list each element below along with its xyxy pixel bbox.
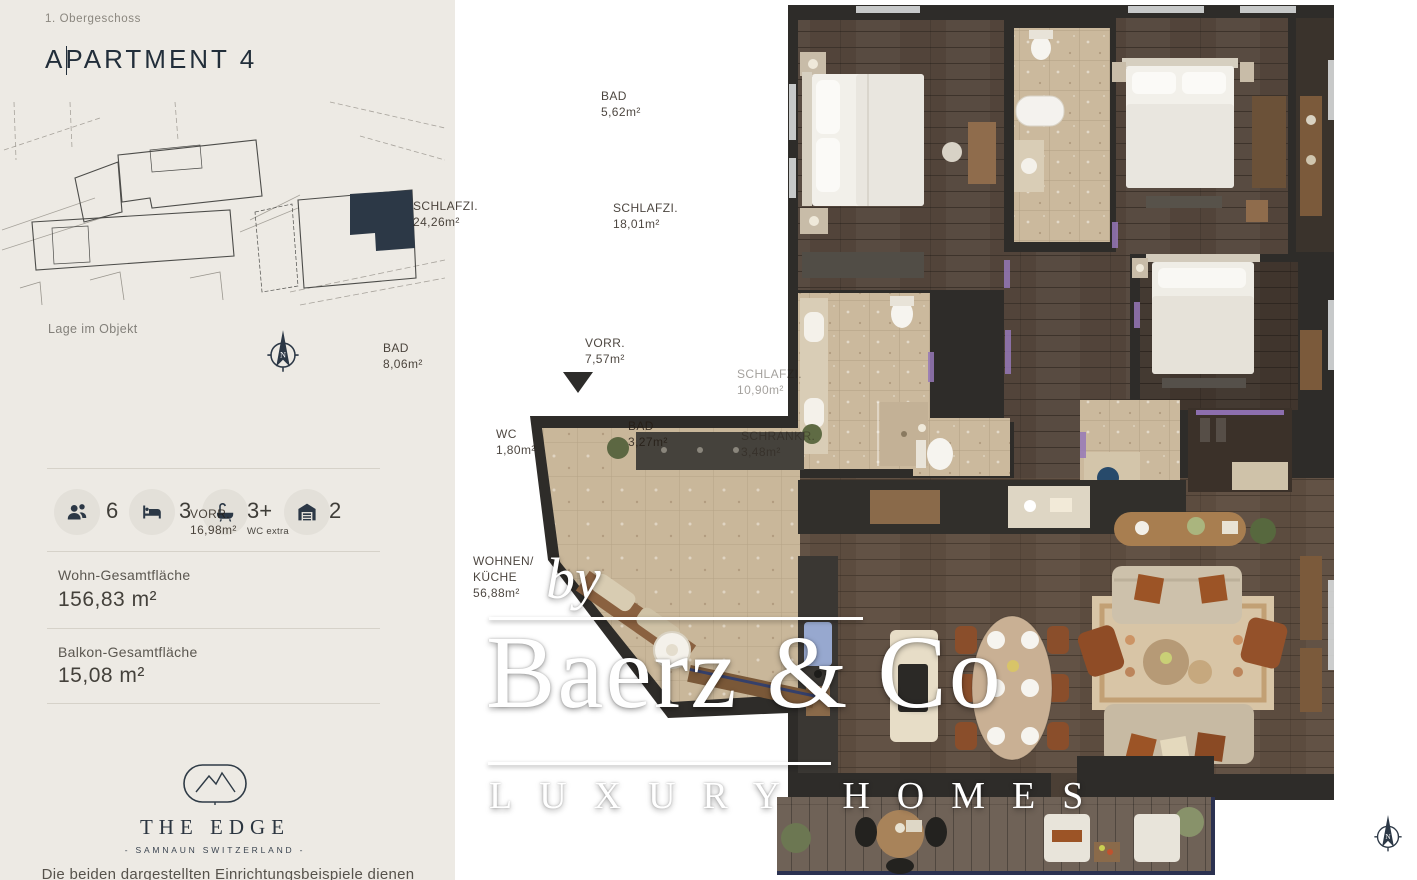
divider — [47, 468, 380, 469]
room-label-vorraum-1: VORR.7,57m² — [585, 335, 625, 367]
room-label-schlafzimmer-2: SCHLAFZI.18,01m² — [613, 200, 678, 232]
room-label-bad-2: BAD8,06m² — [383, 340, 423, 372]
stat-baths-value: 3+ — [247, 498, 272, 524]
mountain-logo-icon — [179, 762, 251, 806]
watermark-tagline: LUXURY HOMES — [489, 774, 1110, 818]
site-plan-caption: Lage im Objekt — [48, 322, 138, 336]
watermark-brand: Baerz & Co — [486, 618, 1003, 727]
watermark-rule-bottom — [488, 762, 831, 765]
room-label-vorraum-2: VORR.16,98m² — [190, 506, 237, 538]
watermark-by: by — [546, 545, 601, 612]
stat-bedrooms — [129, 489, 175, 535]
site-plan-drawing — [0, 100, 445, 315]
balcony-area-label: Balkon-Gesamtfläche — [58, 644, 198, 660]
compass-letter: N — [1385, 833, 1391, 841]
divider — [47, 551, 380, 552]
people-icon — [65, 500, 89, 524]
highlighted-unit — [350, 190, 415, 251]
balcony-area-value: 15,08 m² — [58, 664, 145, 688]
floor-plan — [455, 0, 1417, 880]
entrance-arrow-marker — [563, 372, 593, 393]
compass-letter: N — [280, 351, 286, 360]
stat-people — [54, 489, 100, 535]
floor-label: 1. Obergeschoss — [45, 13, 141, 25]
stat-garage — [284, 489, 330, 535]
bed-icon — [140, 500, 164, 524]
compass-icon: N — [260, 328, 306, 378]
compass-icon: N — [1368, 808, 1408, 862]
room-label-bad-3: BAD3,27m² — [628, 418, 668, 450]
living-area-label: Wohn-Gesamtfläche — [58, 567, 190, 583]
divider — [47, 628, 380, 629]
footer-disclaimer: Die beiden dargestellten Einrichtungsbei… — [18, 866, 438, 880]
living-area-value: 156,83 m² — [58, 588, 157, 612]
room-label-bad-1: BAD5,62m² — [601, 88, 641, 120]
bath1-floor — [1014, 28, 1110, 242]
stat-garage-value: 2 — [329, 498, 341, 524]
corridor-floor — [1004, 252, 1130, 422]
garage-icon — [295, 500, 319, 524]
stat-people-value: 6 — [106, 498, 118, 524]
room-label-schlafzimmer-3: SCHLAFZI.10,90m² — [737, 366, 802, 398]
room-label-schrankraum: SCHRANKR.3,48m² — [741, 428, 815, 460]
logo-subtitle: - SAMNAUN SWITZERLAND - — [60, 845, 370, 855]
divider — [47, 703, 380, 704]
stat-baths-note: WC extra — [247, 526, 289, 537]
page-title: APARTMENT 4 — [45, 44, 257, 75]
brand-logo: THE EDGE - SAMNAUN SWITZERLAND - — [60, 762, 370, 855]
room-label-wohnen-kueche: WOHNEN/KÜCHE56,88m² — [473, 553, 534, 602]
sidebar: 1. Obergeschoss APARTMENT 4 Lage im — [0, 0, 455, 880]
room-label-wc: WC1,80m² — [496, 426, 536, 458]
title-cursor-line — [66, 46, 67, 75]
logo-name: THE EDGE — [60, 815, 370, 840]
page: 1. Obergeschoss APARTMENT 4 Lage im — [0, 0, 1417, 880]
balcony-edge-line — [777, 871, 1215, 875]
room-label-schlafzimmer-1: SCHLAFZI.24,26m² — [413, 198, 478, 230]
